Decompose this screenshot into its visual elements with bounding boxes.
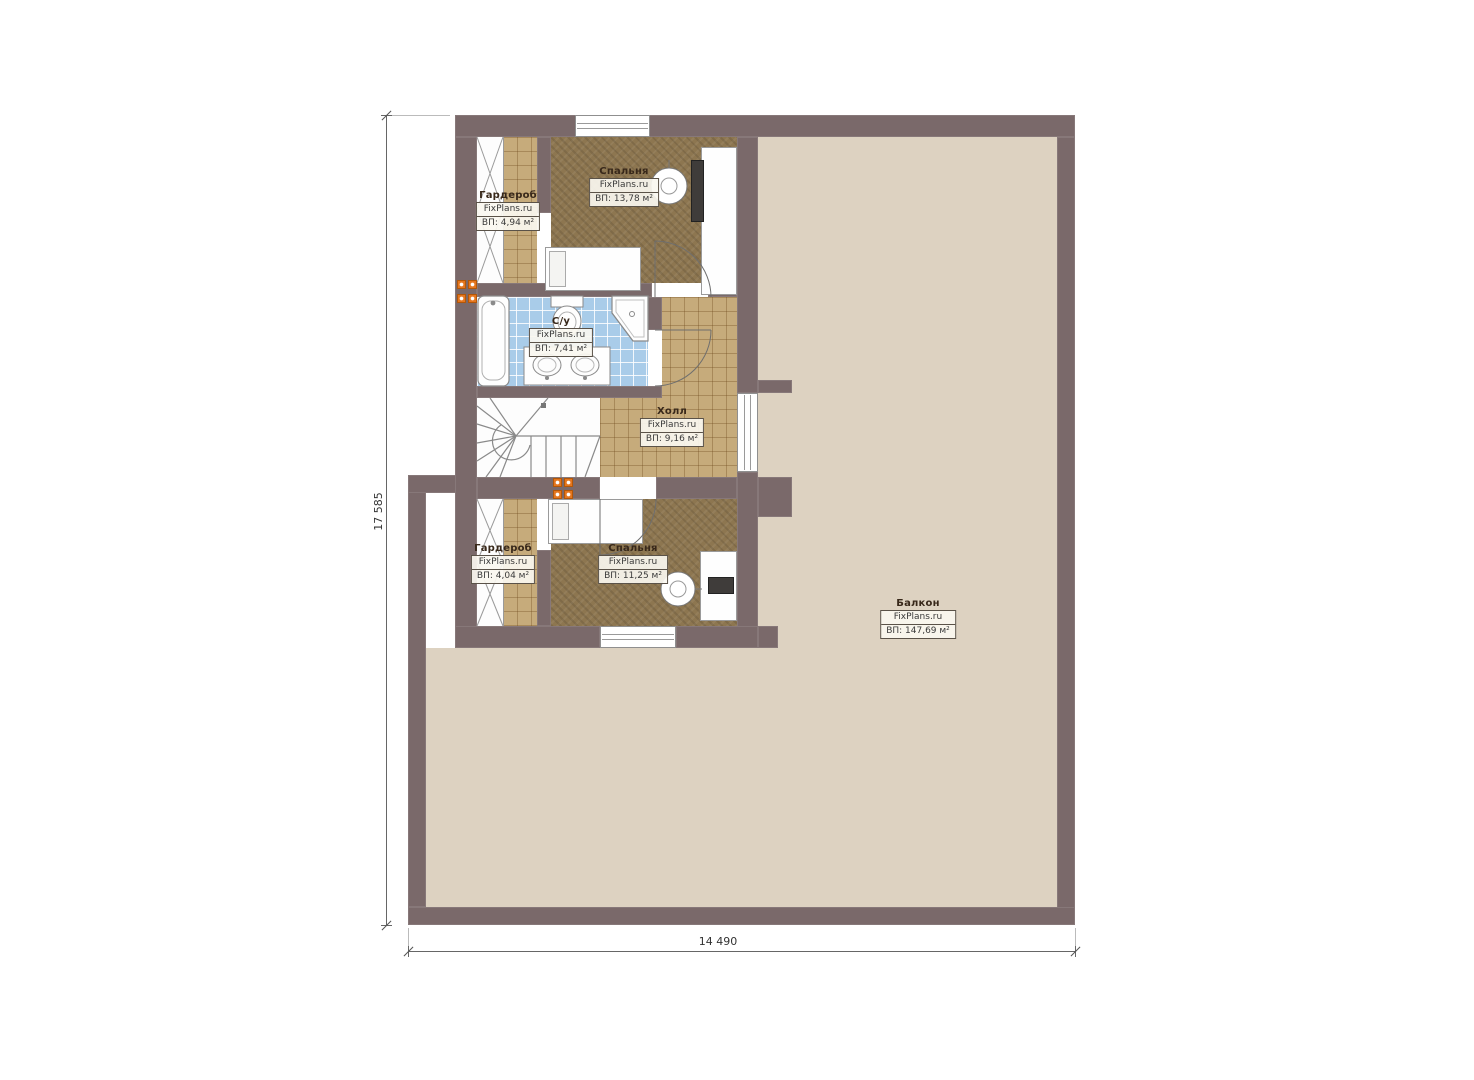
vent-marker	[457, 280, 466, 289]
room-label-hall: Холл FixPlans.ru ВП: 9,16 м²	[640, 406, 704, 447]
room-label-wardrobe-bottom: Гардероб FixPlans.ru ВП: 4,04 м²	[471, 543, 535, 584]
vent-marker	[564, 490, 573, 499]
pillow	[552, 503, 569, 540]
room-area: ВП: 7,41 м²	[530, 343, 592, 356]
parapet-bottom	[408, 907, 1075, 925]
brand-watermark: FixPlans.ru	[590, 179, 658, 193]
wall-bottom-right	[676, 626, 758, 648]
room-area: ВП: 4,04 м²	[472, 570, 534, 583]
wall-top	[455, 115, 1075, 137]
room-info-box: FixPlans.ru ВП: 7,41 м²	[529, 328, 593, 357]
vent-marker	[468, 294, 477, 303]
brand-watermark: FixPlans.ru	[472, 556, 534, 570]
balcony-floor-bottom	[426, 648, 758, 907]
room-info-box: FixPlans.ru ВП: 13,78 м²	[589, 178, 659, 207]
wall-right-upper	[737, 137, 758, 393]
wall-stub-mid	[758, 477, 792, 517]
room-area: ВП: 4,94 м²	[477, 217, 539, 230]
brand-watermark: FixPlans.ru	[477, 203, 539, 217]
window-top	[575, 115, 650, 137]
room-area: ВП: 11,25 м²	[599, 570, 667, 583]
wall-wardrobe-bottom	[537, 550, 551, 626]
room-label-balcony: Балкон FixPlans.ru ВП: 147,69 м²	[880, 598, 956, 639]
wall-hall-bedroom-left	[477, 477, 600, 499]
wall-right-lower	[737, 472, 758, 648]
bed-bedroom-top	[545, 247, 641, 291]
room-info-box: FixPlans.ru ВП: 4,04 м²	[471, 555, 535, 584]
stairs-floor	[477, 398, 600, 477]
room-label-bedroom-top: Спальня FixPlans.ru ВП: 13,78 м²	[589, 166, 659, 207]
vent-marker	[457, 294, 466, 303]
floor-plan-canvas: Гардероб FixPlans.ru ВП: 4,94 м² Спальня…	[0, 0, 1474, 1080]
room-area: ВП: 13,78 м²	[590, 193, 658, 206]
doorway-bedroom-top	[652, 283, 708, 297]
wall-stub-corner	[758, 626, 778, 648]
room-info-box: FixPlans.ru ВП: 147,69 м²	[880, 610, 956, 639]
room-area: ВП: 147,69 м²	[881, 625, 955, 638]
desk-bedroom-top	[701, 147, 737, 295]
vent-marker	[553, 490, 562, 499]
parapet-left	[408, 475, 426, 907]
room-info-box: FixPlans.ru ВП: 11,25 м²	[598, 555, 668, 584]
window-bottom	[600, 626, 676, 648]
brand-watermark: FixPlans.ru	[881, 611, 955, 625]
room-name: С/у	[529, 316, 593, 327]
room-label-bathroom: С/у FixPlans.ru ВП: 7,41 м²	[529, 316, 593, 357]
wall-stub-upper	[758, 380, 792, 393]
room-name: Гардероб	[476, 190, 540, 201]
balcony-floor	[758, 137, 1057, 907]
pillow	[549, 251, 566, 287]
width-dimension: 14 490	[699, 935, 738, 948]
vent-marker	[468, 280, 477, 289]
wall-hall-bedroom-right	[656, 477, 737, 499]
doorway-bedroom-bottom	[600, 477, 656, 499]
balcony-french-door	[737, 393, 758, 472]
room-name: Холл	[640, 406, 704, 417]
height-dimension: 17 585	[372, 492, 385, 531]
vertical-dimension-line	[386, 115, 387, 925]
horizontal-dimension-line	[408, 951, 1075, 952]
monitor-bedroom-top	[691, 160, 704, 222]
room-name: Балкон	[880, 598, 956, 609]
room-label-wardrobe-top: Гардероб FixPlans.ru ВП: 4,94 м²	[476, 190, 540, 231]
wall-bottom-left	[455, 626, 600, 648]
vent-marker	[564, 478, 573, 487]
monitor-bedroom-bottom	[708, 577, 734, 594]
room-info-box: FixPlans.ru ВП: 4,94 м²	[476, 202, 540, 231]
wall-bath-hall	[648, 297, 662, 330]
room-name: Спальня	[598, 543, 668, 554]
room-name: Спальня	[589, 166, 659, 177]
brand-watermark: FixPlans.ru	[599, 556, 667, 570]
vent-marker	[553, 478, 562, 487]
brand-watermark: FixPlans.ru	[530, 329, 592, 343]
bed-bedroom-bottom	[548, 499, 643, 544]
brand-watermark: FixPlans.ru	[641, 419, 703, 433]
doorway-bathroom	[648, 330, 662, 386]
room-name: Гардероб	[471, 543, 535, 554]
wall-bath-stairs	[477, 386, 662, 398]
room-label-bedroom-bottom: Спальня FixPlans.ru ВП: 11,25 м²	[598, 543, 668, 584]
extension-line	[392, 115, 450, 116]
room-info-box: FixPlans.ru ВП: 9,16 м²	[640, 418, 704, 447]
parapet-right	[1057, 137, 1075, 925]
room-area: ВП: 9,16 м²	[641, 433, 703, 446]
